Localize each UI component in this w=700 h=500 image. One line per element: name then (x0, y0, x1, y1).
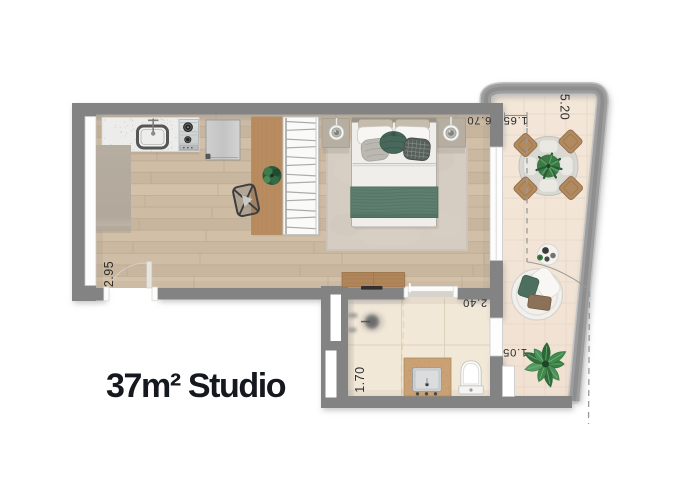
svg-text:5.20: 5.20 (557, 94, 571, 120)
svg-text:1.70: 1.70 (353, 366, 367, 392)
svg-text:1.05: 1.05 (502, 346, 527, 358)
svg-text:2.40: 2.40 (462, 296, 487, 308)
svg-text:6.70: 6.70 (467, 114, 492, 126)
svg-text:1.65: 1.65 (503, 114, 528, 126)
svg-text:2.95: 2.95 (102, 261, 116, 287)
svg-text:37m² Studio: 37m² Studio (106, 367, 286, 405)
